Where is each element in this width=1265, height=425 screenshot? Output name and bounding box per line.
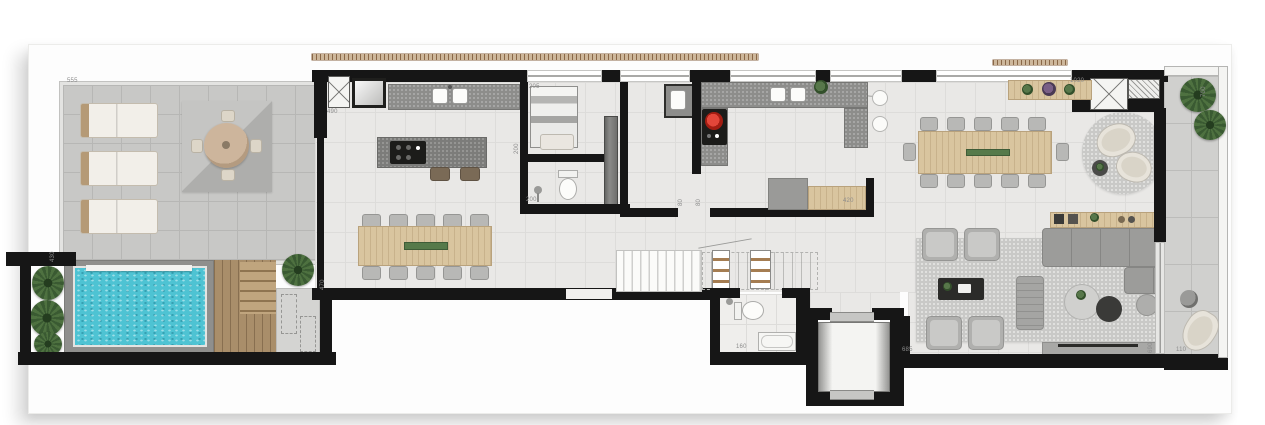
decor-tray [1128,216,1135,223]
burner [406,145,411,150]
dining-chair [974,174,992,188]
shower-head-icon [726,298,733,305]
tray [958,284,971,293]
counter-stool [872,90,888,106]
wall [866,178,874,217]
dimension-label-door-a: 80 [678,199,685,206]
dining-chair [920,117,938,131]
wall [620,208,678,217]
laundry-bench [540,134,574,150]
palm-plant [30,300,64,336]
kitchen-sink [452,88,468,104]
plant-on-counter [814,80,828,94]
bathtub [758,332,796,351]
dining-chair [947,117,965,131]
outdoor-chair [250,139,262,153]
dimension-label-terrace: 555 [67,78,78,85]
swimming-pool [73,266,207,347]
balcony-pouf [1180,290,1198,308]
window [830,70,902,82]
dimension-label-bath2: 160 [736,344,747,351]
chaise-lounge [80,151,158,186]
wall [710,352,810,365]
picture-frame [1054,214,1064,224]
staircase [616,250,702,292]
dining-chair [1001,117,1019,131]
service-elevator-shaft [1090,78,1128,110]
ottoman [1016,276,1044,330]
table-runner [966,149,1010,156]
wall [520,154,604,162]
kitchen-counter-right-arm [844,108,868,148]
pad-dashed-outline [281,294,297,334]
counter-stool [872,116,888,132]
toilet [734,302,742,320]
bar-sink [670,90,686,110]
plant [1064,84,1075,95]
dimension-label-bath1: 200 [526,197,537,204]
toilet [558,170,578,178]
burner [715,134,719,138]
palm-plant [1194,110,1226,140]
dining-chair [920,174,938,188]
duct-shaft [1128,79,1160,99]
toilet [742,301,764,320]
wall [1154,108,1166,242]
red-pot-on-stove [705,112,723,130]
sliding-door-opening [566,289,612,299]
shower-hose [537,193,539,202]
wall [317,138,324,290]
sofa [1042,228,1162,267]
television [1058,344,1138,347]
burner [396,155,401,160]
wall [710,292,720,360]
dimension-label-laundry: 205 [529,84,540,91]
window [620,70,690,82]
chaise-lounge [80,103,158,138]
faucet [448,85,452,89]
wall [620,82,628,214]
elevator-cab [818,322,890,392]
pad-dashed-outline [300,316,316,352]
armchair [926,316,962,350]
dimension-label-laundry-depth: 200 [514,143,521,154]
burner [406,155,411,160]
dining-chair [903,143,916,161]
kitchen-cabinet [768,178,808,210]
plant [1096,163,1104,171]
hatched-wall-strip [312,54,758,60]
outdoor-chair [221,110,235,122]
dimension-label-balcony-end: 110 [1176,347,1186,354]
floor-plan-canvas: 555 490 430 470 205 200 200 80 80 420 10… [0,0,1265,425]
kitchen-sideboard [808,186,866,210]
wall [314,70,327,138]
stair-shelf-unit [712,250,730,293]
dining-chair [1001,174,1019,188]
kitchen-sink [432,88,448,104]
dining-chair [1028,117,1046,131]
table-runner [404,242,448,250]
elevator-door-sill [830,390,874,400]
dimension-label-pool-right: 470 [320,279,327,290]
window [730,70,816,82]
wall [520,204,630,214]
dimension-label-dining: 1020 [1070,78,1084,85]
wall [6,252,76,266]
dimension-label-living-width: 685 [902,347,913,354]
dimension-label-balcony: 700 [1201,86,1208,97]
armchair [922,228,958,261]
toilet [559,178,577,200]
dining-chair [947,174,965,188]
armchair [964,228,1000,261]
wall [18,352,336,365]
pool-step-ledge [86,265,192,271]
plant [943,282,952,291]
kitchen-sink [790,87,806,102]
round-side-table [1096,296,1122,322]
island-stool [430,167,450,181]
outdoor-chair [221,169,235,181]
armchair [968,316,1004,350]
dimension-label-gourmet: 490 [327,109,338,116]
burner [396,145,401,150]
plant [1076,290,1086,300]
balcony-glass-door [1155,242,1165,354]
dimension-label-pool-left: 430 [50,251,57,262]
flower-vase [1042,82,1056,96]
elevator-door-sill [830,312,874,322]
tall-cabinet [604,116,618,206]
exterior-wall-bottom [906,354,1168,368]
dining-chair [416,266,435,280]
deck-steps [240,262,276,314]
stair-shelf-unit [750,250,771,289]
decor-tray [1118,216,1125,223]
console-shelf [1050,212,1158,228]
dining-chair [1028,174,1046,188]
dimension-label-living-depth: 690 [1148,342,1155,353]
palm-plant [282,254,314,286]
picture-frame [1068,214,1078,224]
burner [707,134,711,138]
dining-chair [362,266,381,280]
plant [1022,84,1033,95]
plant [1090,213,1099,222]
outdoor-chair [191,139,203,153]
dining-chair [389,266,408,280]
palm-plant [1180,78,1216,112]
burner [416,146,420,150]
dining-chair [1056,143,1069,161]
window [527,70,602,82]
kitchen-sink [770,87,786,102]
wall [692,70,701,174]
balcony-parapet [1218,66,1228,358]
dimension-label-door-b: 80 [696,199,703,206]
palm-plant [32,266,64,300]
wall [520,82,528,214]
dining-chair [470,266,489,280]
island-stool [460,167,480,181]
wall [20,258,31,360]
dimension-label-sideboard: 420 [843,198,854,205]
table-centerpiece [222,141,230,149]
chaise-lounge [80,199,158,234]
dining-chair [974,117,992,131]
dining-chair [443,266,462,280]
pantry-shaft-box [328,76,350,108]
hatched-wall-strip [993,60,1067,65]
elevator-shaft-wall [806,316,818,404]
oven-appliance [352,78,386,108]
